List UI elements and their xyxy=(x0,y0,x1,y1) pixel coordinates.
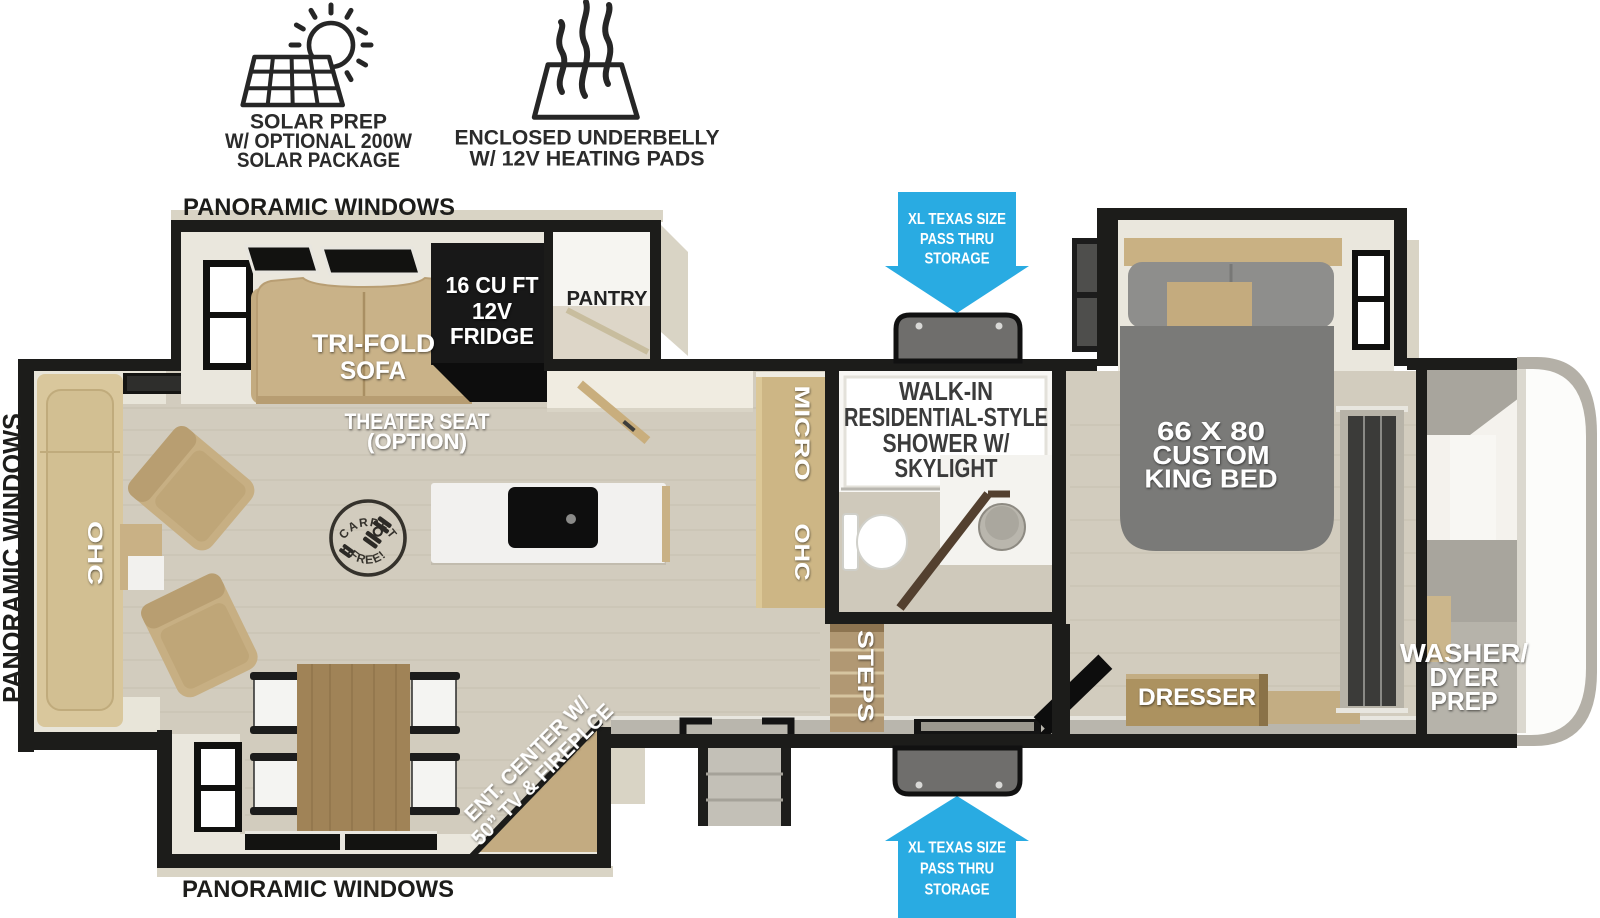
svg-text:PASS THRU: PASS THRU xyxy=(920,861,994,878)
svg-text:PASS THRU: PASS THRU xyxy=(920,231,994,248)
svg-text:OHC: OHC xyxy=(83,521,106,585)
svg-text:FRIDGE: FRIDGE xyxy=(450,323,534,349)
svg-text:TRI-FOLD: TRI-FOLD xyxy=(312,330,435,358)
svg-text:PANORAMIC WINDOWS: PANORAMIC WINDOWS xyxy=(0,413,28,703)
svg-text:12V: 12V xyxy=(472,298,513,324)
svg-text:XL TEXAS SIZE: XL TEXAS SIZE xyxy=(908,211,1006,228)
svg-text:DRESSER: DRESSER xyxy=(1138,684,1256,711)
svg-text:(OPTION): (OPTION) xyxy=(367,429,467,454)
svg-text:MICRO: MICRO xyxy=(790,386,813,481)
svg-text:STEPS: STEPS xyxy=(853,630,878,722)
svg-text:STORAGE: STORAGE xyxy=(925,882,990,899)
svg-text:XL TEXAS SIZE: XL TEXAS SIZE xyxy=(908,840,1006,857)
svg-text:PANORAMIC WINDOWS: PANORAMIC WINDOWS xyxy=(183,194,455,221)
svg-text:16 CU FT: 16 CU FT xyxy=(446,272,539,298)
svg-text:KING BED: KING BED xyxy=(1145,464,1278,494)
svg-text:W/ 12V HEATING PADS: W/ 12V HEATING PADS xyxy=(470,148,705,171)
svg-text:PANORAMIC WINDOWS: PANORAMIC WINDOWS xyxy=(182,876,454,903)
svg-text:ENCLOSED UNDERBELLY: ENCLOSED UNDERBELLY xyxy=(455,127,720,150)
svg-text:SKYLIGHT: SKYLIGHT xyxy=(895,453,998,483)
svg-text:OHC: OHC xyxy=(790,524,813,581)
svg-text:PANTRY: PANTRY xyxy=(567,288,649,310)
svg-text:STORAGE: STORAGE xyxy=(925,251,990,268)
svg-text:PREP: PREP xyxy=(1431,686,1498,716)
svg-text:SOLAR PACKAGE: SOLAR PACKAGE xyxy=(237,149,400,172)
svg-text:SOFA: SOFA xyxy=(340,357,406,385)
